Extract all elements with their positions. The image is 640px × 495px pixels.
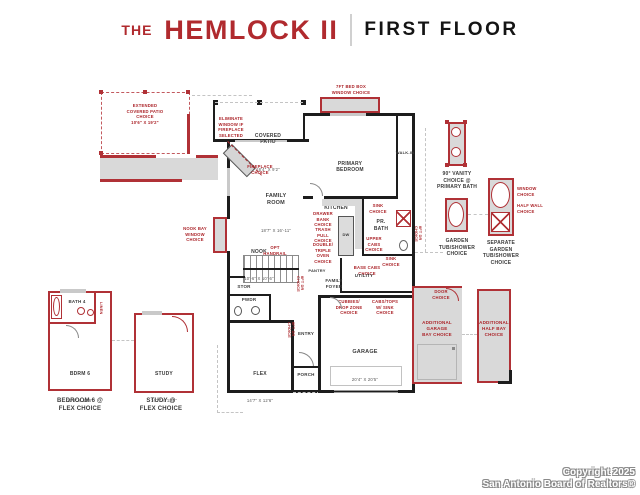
drawer-bank-label: DRAWER BANK CHOICE [310, 211, 336, 228]
primary-bedroom-name: PRIMARY BEDROOM [320, 161, 380, 174]
post [143, 90, 147, 94]
garage-bay-line [417, 344, 457, 380]
separate-garden-caption: SEPARATE GARDEN TUB/SHOWER CHOICE [478, 240, 524, 266]
sink [451, 127, 461, 137]
half-wall-label: HALF WALL CHOICE [517, 203, 545, 214]
sink [451, 147, 461, 157]
window [227, 168, 230, 196]
dashed-connector [217, 412, 243, 413]
wall [227, 276, 245, 278]
double-oven-label: DOUBLE/ TRIPLE OVEN CHOICE [310, 242, 336, 265]
brand-prefix: THE [121, 22, 152, 38]
wall [227, 320, 293, 323]
flex-label: FLEX 14'7" X 12'6" [238, 350, 282, 424]
family-room-name: FAMILY ROOM [248, 193, 304, 207]
nook-bay-label: NOOK BAY WINDOW CHOICE [181, 226, 209, 243]
porch-label: PORCH [294, 372, 318, 378]
shower [491, 212, 510, 232]
study-name: STUDY [142, 371, 186, 378]
dashed-connector [192, 95, 252, 96]
wall [509, 370, 512, 384]
pantry-label: PANTRY [304, 268, 330, 273]
wall [340, 291, 414, 293]
wall [318, 390, 334, 393]
entry-label: ENTRY [294, 331, 318, 337]
sink-choice-lower-label: SINK CHOICE [380, 256, 402, 267]
toilet [399, 240, 408, 251]
dishwasher-label: DW [340, 232, 352, 237]
toilet [77, 307, 85, 315]
door-8ft-label: 8FT DR CHOICE [287, 322, 295, 352]
tub [491, 182, 510, 208]
tub-basin [53, 297, 60, 316]
dashed-connector [217, 345, 218, 413]
vanity-caption: 90° VANITY CHOICE @ PRIMARY BATH [433, 171, 481, 191]
window [142, 311, 162, 315]
post [99, 90, 103, 94]
wall [303, 196, 313, 199]
counter [355, 199, 362, 249]
pr-bath-label: PR. BATH [366, 219, 396, 232]
door-8ft-label: 8FT DR CHOICE [296, 276, 304, 306]
flex-dim: 14'7" X 12'6" [238, 398, 282, 403]
patio-edge [215, 102, 303, 103]
door-swing [299, 352, 314, 367]
walk-in-label: WALK-IN [394, 150, 416, 155]
bdrm6-name: BDRM 6 [56, 371, 104, 378]
floor-title: FIRST FLOOR [364, 19, 518, 41]
brand-name: HEMLOCK II [164, 15, 338, 46]
tub [448, 202, 464, 227]
additional-half-bay-label: ADDITIONAL HALF BAY CHOICE [479, 320, 509, 338]
nook-bay-window [213, 217, 227, 253]
bath4-label: BATH 4 [62, 299, 92, 305]
sink [87, 309, 94, 316]
patio-slab [100, 158, 218, 180]
garage-name: GARAGE [340, 349, 390, 356]
wall [398, 390, 415, 393]
dashed-connector [462, 334, 477, 335]
floor-plan-page: THE HEMLOCK II FIRST FLOOR EXTENDED COVE… [0, 0, 640, 495]
wall [227, 294, 271, 296]
wall [94, 293, 96, 323]
upper-cabs-label: UPPER CABS CHOICE [362, 236, 386, 253]
wall [396, 116, 398, 196]
bedroom6-flex-caption: BEDROOM 6 @ FLEX CHOICE [45, 398, 115, 414]
post [445, 120, 449, 124]
study-flex-caption: STUDY @ FLEX CHOICE [128, 398, 194, 414]
sink-choice-upper-label: SINK CHOICE [366, 203, 390, 214]
plan-header: THE HEMLOCK II FIRST FLOOR [0, 14, 640, 46]
dashed-connector [112, 340, 134, 341]
copyright-notice: Copyright 2025 San Antonio Board of Real… [482, 467, 635, 491]
window-choice-label: WINDOW CHOICE [517, 186, 543, 197]
wall [303, 113, 305, 141]
flex-name: FLEX [238, 371, 282, 378]
bed-box-window-label: 7FT BED BOX WINDOW CHOICE [322, 84, 380, 95]
wall [187, 114, 190, 154]
window [60, 289, 86, 293]
family-foyer-label: FAMILY FOYER [316, 278, 352, 290]
post [463, 163, 467, 167]
copyright-org: San Antonio Board of Realtors® [482, 479, 635, 491]
wall [48, 322, 96, 324]
covered-patio-name: COVERED PATIO [238, 133, 298, 146]
garage-label: GARAGE 20'4" X 20'5" [340, 328, 390, 403]
dot [452, 347, 455, 350]
pwdr-label: PWDR [234, 297, 264, 303]
stor-label: STOR [229, 284, 259, 290]
dashed-connector [425, 128, 426, 252]
wall [293, 366, 320, 368]
garden-tub-caption: GARDEN TUB/SHOWER CHOICE [437, 238, 477, 258]
linen-label: LINEN [99, 302, 103, 322]
header-divider [350, 14, 352, 46]
post [445, 163, 449, 167]
copyright-year: Copyright 2025 [482, 467, 635, 479]
post [186, 90, 190, 94]
stair-rail [243, 268, 299, 270]
shower [396, 210, 411, 227]
extended-patio-label: EXTENDED COVERED PATIO CHOICE 10'6" X 19… [104, 103, 186, 126]
dashed-connector [468, 214, 488, 215]
wall [196, 155, 218, 158]
porch-edge [293, 392, 320, 393]
garage-dim: 20'4" X 20'5" [340, 377, 390, 382]
additional-garage-bay-label: ADDITIONAL GARAGE BAY CHOICE [422, 320, 452, 338]
wall [269, 294, 271, 322]
sink [251, 306, 260, 315]
box-window [320, 97, 380, 113]
window [330, 113, 366, 116]
toilet [234, 306, 242, 316]
wall [100, 179, 182, 182]
post [463, 120, 467, 124]
cabs-tops-label: CABS/TOPS W/ SINK CHOICE [370, 299, 400, 316]
wall [100, 155, 156, 158]
wall [318, 295, 321, 393]
